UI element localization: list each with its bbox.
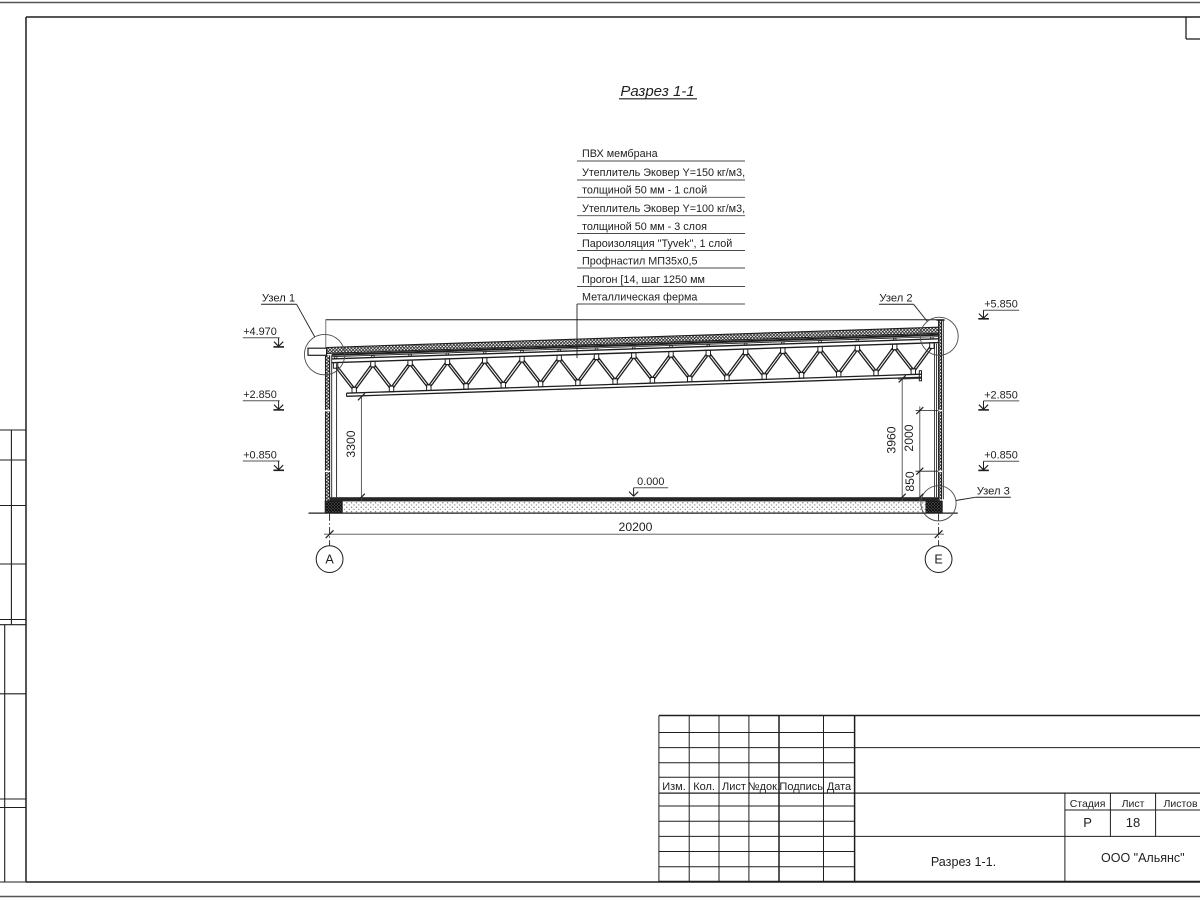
svg-text:Изм.: Изм.	[662, 781, 686, 793]
svg-text:+0.850: +0.850	[984, 450, 1018, 462]
svg-text:Утеплитель Эковер Y=100 кг/м3,: Утеплитель Эковер Y=100 кг/м3,	[582, 203, 745, 215]
svg-text:Разрез 1-1: Разрез 1-1	[620, 83, 694, 100]
svg-text:Узел 2: Узел 2	[879, 293, 912, 305]
svg-text:+4.970: +4.970	[243, 326, 277, 338]
svg-text:2000: 2000	[902, 424, 916, 451]
svg-text:Утеплитель Эковер Y=150 кг/м3,: Утеплитель Эковер Y=150 кг/м3,	[582, 167, 745, 179]
svg-text:Узел 1: Узел 1	[262, 293, 295, 305]
svg-text:толщиной 50 мм - 1 слой: толщиной 50 мм - 1 слой	[582, 185, 707, 197]
svg-text:850: 850	[903, 471, 917, 492]
svg-text:Металлическая ферма: Металлическая ферма	[582, 292, 697, 304]
svg-text:Профнастил МП35х0,5: Профнастил МП35х0,5	[582, 255, 697, 267]
svg-text:18: 18	[1126, 815, 1140, 830]
svg-text:толщиной 50 мм - 3 слоя: толщиной 50 мм - 3 слоя	[582, 221, 707, 233]
svg-text:3960: 3960	[884, 426, 898, 453]
svg-text:+2.850: +2.850	[243, 389, 277, 401]
svg-text:3300: 3300	[344, 430, 358, 457]
svg-text:ООО "Альянс": ООО "Альянс"	[1101, 851, 1185, 865]
svg-text:Дата: Дата	[827, 781, 852, 793]
svg-text:Подпись: Подпись	[779, 781, 823, 793]
svg-text:Листов: Листов	[1163, 798, 1198, 810]
svg-text:№док.: №док.	[748, 781, 780, 793]
svg-text:+5.850: +5.850	[984, 299, 1018, 311]
svg-text:Прогон [14, шаг 1250 мм: Прогон [14, шаг 1250 мм	[582, 274, 705, 286]
svg-text:Лист: Лист	[722, 781, 746, 793]
svg-text:Е: Е	[934, 553, 942, 567]
svg-text:Узел 3: Узел 3	[977, 486, 1010, 498]
svg-text:0.000: 0.000	[637, 476, 664, 488]
svg-text:А: А	[325, 553, 334, 567]
svg-text:Разрез 1-1.: Разрез 1-1.	[931, 855, 996, 869]
svg-text:Пароизоляция "Tyvek", 1 слой: Пароизоляция "Tyvek", 1 слой	[582, 238, 732, 250]
svg-text:Р: Р	[1083, 815, 1092, 830]
svg-text:+2.850: +2.850	[984, 389, 1018, 401]
svg-text:Кол.: Кол.	[693, 781, 715, 793]
svg-text:+0.850: +0.850	[243, 449, 277, 461]
svg-text:20200: 20200	[619, 520, 653, 534]
svg-text:Лист: Лист	[1122, 798, 1145, 810]
svg-text:Стадия: Стадия	[1070, 798, 1106, 810]
svg-text:ПВХ мембрана: ПВХ мембрана	[582, 148, 658, 160]
